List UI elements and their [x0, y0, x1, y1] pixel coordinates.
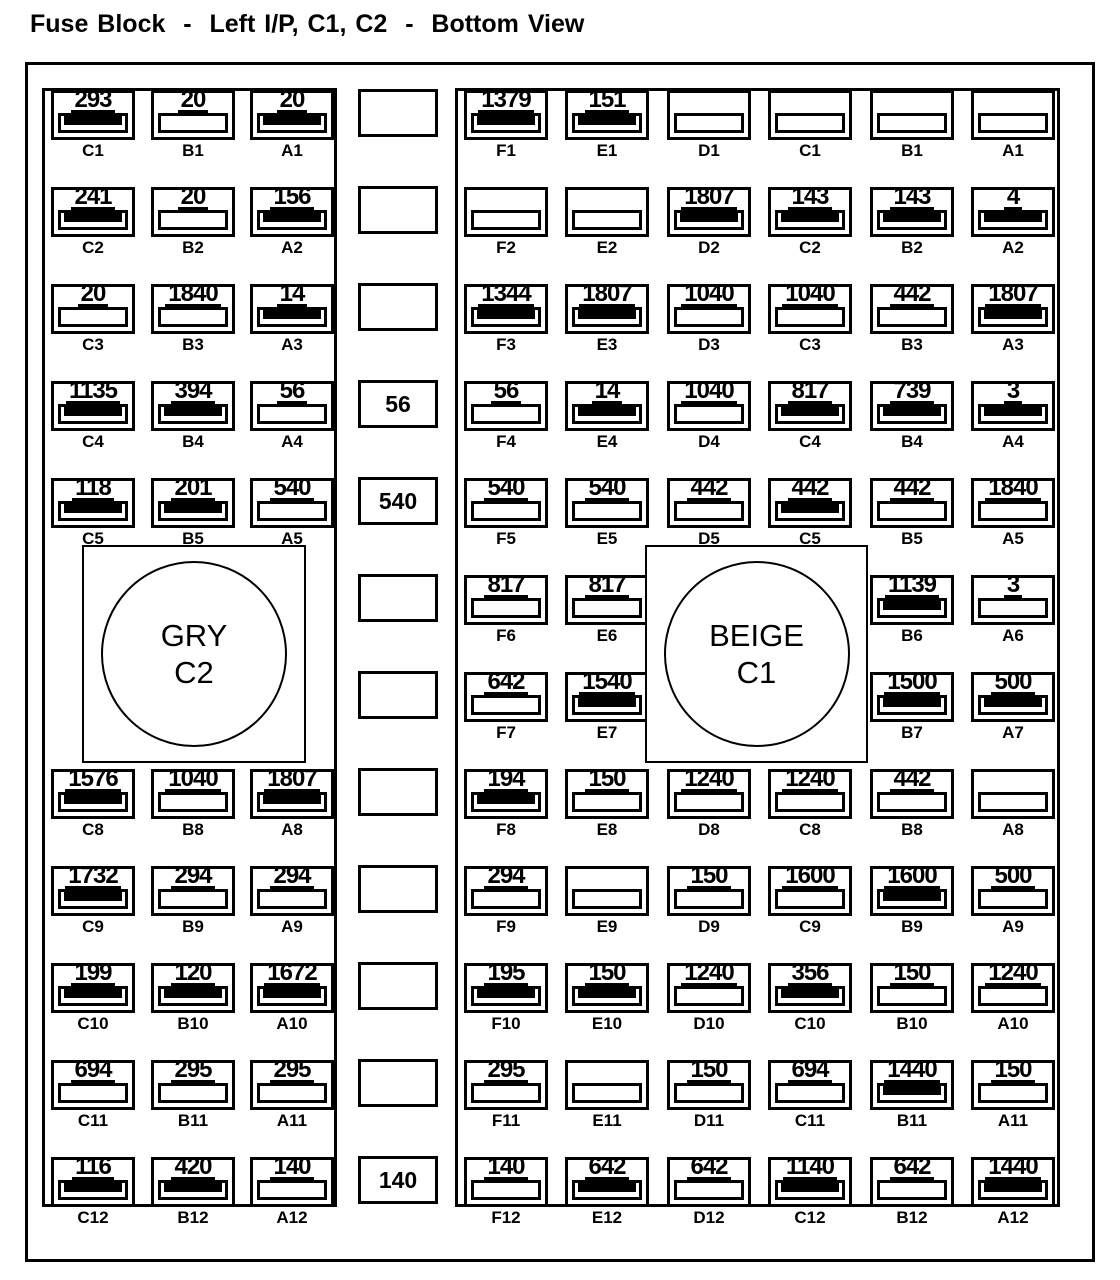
fuse-cell-c2: 143C2	[768, 187, 852, 258]
terminal-slot	[158, 986, 228, 1006]
fuse-cell-box: 295	[464, 1060, 548, 1110]
fuse-cell-a9: 500A9	[971, 866, 1055, 937]
terminal-slot	[775, 792, 845, 812]
circuit-number: 1807	[974, 284, 1052, 305]
fuse-cell-box	[971, 90, 1055, 140]
fuse-cell-f5: 540F5	[464, 478, 548, 549]
fuse-cell-f6: 817F6	[464, 575, 548, 646]
fuse-cell-box: 1140	[768, 1157, 852, 1207]
terminal-slot	[572, 1083, 642, 1103]
fuse-cell-box: 150	[667, 1060, 751, 1110]
fuse-cell-d9: 150D9	[667, 866, 751, 937]
fuse-cell-box: 140	[250, 1157, 334, 1207]
fuse-cell-box	[768, 90, 852, 140]
fuse-cell-b3: 442B3	[870, 284, 954, 355]
terminal-slot	[257, 307, 327, 327]
fuse-cell-box: 1240	[768, 769, 852, 819]
fuse-cell-box: 500	[971, 672, 1055, 722]
circuit-number: 150	[974, 1060, 1052, 1081]
pin-label: E3	[565, 335, 649, 355]
fuse-cell-c12: 116C12	[51, 1157, 135, 1228]
pin-label: D10	[667, 1014, 751, 1034]
terminal-slot	[572, 598, 642, 618]
circuit-number: 394	[154, 381, 232, 402]
middle-bus-box-empty	[358, 89, 438, 137]
fuse-cell-f3: 1344F3	[464, 284, 548, 355]
pin-label: B2	[151, 238, 235, 258]
circuit-number: 4	[974, 187, 1052, 208]
terminal-slot	[877, 986, 947, 1006]
fuse-cell-box: 1040	[667, 381, 751, 431]
fuse-cell-box: 817	[768, 381, 852, 431]
circuit-number: 1240	[670, 963, 748, 984]
circuit-number: 150	[670, 1060, 748, 1081]
fuse-cell-box: 500	[971, 866, 1055, 916]
circuit-number: 14	[253, 284, 331, 305]
fuse-cell-c10: 199C10	[51, 963, 135, 1034]
fuse-cell-a8: 1807A8	[250, 769, 334, 840]
fuse-cell-d10: 1240D10	[667, 963, 751, 1034]
terminal-slot	[978, 307, 1048, 327]
pin-label: B5	[870, 529, 954, 549]
fuse-cell-a1: 20A1	[250, 90, 334, 161]
fuse-cell-box: 394	[151, 381, 235, 431]
circuit-number: 1135	[54, 381, 132, 402]
pin-label: A1	[971, 141, 1055, 161]
fuse-cell-box: 241	[51, 187, 135, 237]
fuse-cell-box: 150	[667, 866, 751, 916]
pin-label: F5	[464, 529, 548, 549]
fuse-cell-c10: 356C10	[768, 963, 852, 1034]
terminal-slot	[877, 113, 947, 133]
terminal-slot	[978, 113, 1048, 133]
terminal-slot	[471, 1083, 541, 1103]
fuse-cell-c4: 1135C4	[51, 381, 135, 452]
fuse-cell-b12: 642B12	[870, 1157, 954, 1228]
fuse-cell-box: 739	[870, 381, 954, 431]
circuit-number: 540	[568, 478, 646, 499]
fuse-cell-box: 1600	[768, 866, 852, 916]
terminal-slot	[471, 113, 541, 133]
fuse-cell-c3: 20C3	[51, 284, 135, 355]
pin-label: C1	[768, 141, 852, 161]
fuse-cell-box: 1807	[971, 284, 1055, 334]
fuse-block-outline: 293C120B120A1241C220B2156A220C31840B314A…	[25, 62, 1095, 1262]
terminal-slot	[471, 792, 541, 812]
terminal-slot	[877, 501, 947, 521]
fuse-cell-a3: 1807A3	[971, 284, 1055, 355]
fuse-cell-b1: 20B1	[151, 90, 235, 161]
pin-label: E6	[565, 626, 649, 646]
terminal-slot	[158, 307, 228, 327]
fuse-cell-box: 1732	[51, 866, 135, 916]
pin-label: D11	[667, 1111, 751, 1131]
fuse-cell-f7: 642F7	[464, 672, 548, 743]
fuse-cell-box: 118	[51, 478, 135, 528]
fuse-cell-c1: 293C1	[51, 90, 135, 161]
pin-label: C8	[768, 820, 852, 840]
fuse-cell-d8: 1240D8	[667, 769, 751, 840]
circuit-number: 420	[154, 1157, 232, 1178]
pin-label: A6	[971, 626, 1055, 646]
pin-label: B6	[870, 626, 954, 646]
circuit-number: 140	[467, 1157, 545, 1178]
fuse-cell-box	[870, 90, 954, 140]
terminal-slot	[58, 889, 128, 909]
middle-bus-box-empty	[358, 962, 438, 1010]
terminal-slot	[978, 1083, 1048, 1103]
terminal-slot	[158, 404, 228, 424]
beige-connector-circle: BEIGE C1	[664, 561, 850, 747]
fuse-cell-d5: 442D5	[667, 478, 751, 549]
fuse-cell-box: 150	[971, 1060, 1055, 1110]
middle-bus-box-empty	[358, 574, 438, 622]
terminal-slot	[978, 598, 1048, 618]
circuit-number: 642	[670, 1157, 748, 1178]
gry-c2-connector: GRY C2	[82, 545, 306, 763]
pin-label: A3	[971, 335, 1055, 355]
circuit-number: 294	[467, 866, 545, 887]
fuse-cell-box: 356	[768, 963, 852, 1013]
fuse-cell-box: 14	[250, 284, 334, 334]
circuit-number: 194	[467, 769, 545, 790]
fuse-cell-b11: 295B11	[151, 1060, 235, 1131]
pin-label: E5	[565, 529, 649, 549]
pin-label: F4	[464, 432, 548, 452]
fuse-cell-box: 20	[51, 284, 135, 334]
circuit-number: 56	[253, 381, 331, 402]
fuse-cell-box: 150	[565, 769, 649, 819]
fuse-cell-b10: 150B10	[870, 963, 954, 1034]
pin-label: B3	[151, 335, 235, 355]
pin-label: F1	[464, 141, 548, 161]
pin-label: A2	[971, 238, 1055, 258]
circuit-number: 442	[670, 478, 748, 499]
fuse-cell-box: 151	[565, 90, 649, 140]
connector-color-label: GRY	[161, 617, 228, 654]
circuit-number: 1240	[974, 963, 1052, 984]
circuit-number: 199	[54, 963, 132, 984]
fuse-cell-box: 1540	[565, 672, 649, 722]
fuse-cell-box: 1840	[151, 284, 235, 334]
pin-label: B4	[870, 432, 954, 452]
circuit-number: 1672	[253, 963, 331, 984]
fuse-cell-box: 56	[464, 381, 548, 431]
fuse-cell-e9: E9	[565, 866, 649, 937]
pin-label: A12	[250, 1208, 334, 1228]
pin-label: A2	[250, 238, 334, 258]
fuse-cell-box: 1135	[51, 381, 135, 431]
fuse-cell-b9: 294B9	[151, 866, 235, 937]
fuse-cell-box: 1576	[51, 769, 135, 819]
terminal-slot	[158, 501, 228, 521]
fuse-cell-box: 14	[565, 381, 649, 431]
circuit-number: 143	[771, 187, 849, 208]
pin-label: F12	[464, 1208, 548, 1228]
fuse-cell-box: 1600	[870, 866, 954, 916]
terminal-slot	[877, 1083, 947, 1103]
fuse-cell-c4: 817C4	[768, 381, 852, 452]
terminal-slot	[471, 889, 541, 909]
fuse-cell-box: 1840	[971, 478, 1055, 528]
terminal-slot	[471, 598, 541, 618]
circuit-number: 20	[253, 90, 331, 111]
circuit-number: 1807	[568, 284, 646, 305]
pin-label: B7	[870, 723, 954, 743]
fuse-cell-e2: E2	[565, 187, 649, 258]
circuit-number: 1140	[771, 1157, 849, 1178]
fuse-cell-box: 295	[250, 1060, 334, 1110]
fuse-cell-box	[464, 187, 548, 237]
fuse-cell-a10: 1672A10	[250, 963, 334, 1034]
pin-label: A11	[971, 1111, 1055, 1131]
fuse-cell-e12: 642E12	[565, 1157, 649, 1228]
fuse-cell-d11: 150D11	[667, 1060, 751, 1131]
terminal-slot	[775, 889, 845, 909]
pin-label: A8	[971, 820, 1055, 840]
circuit-number	[974, 90, 1052, 111]
fuse-cell-d1: D1	[667, 90, 751, 161]
pin-label: A10	[971, 1014, 1055, 1034]
fuse-cell-box: 20	[151, 90, 235, 140]
fuse-cell-a12: 140A12	[250, 1157, 334, 1228]
circuit-number: 500	[974, 866, 1052, 887]
terminal-slot	[572, 210, 642, 230]
pin-label: C12	[768, 1208, 852, 1228]
pin-label: C9	[768, 917, 852, 937]
terminal-slot	[674, 501, 744, 521]
terminal-slot	[877, 307, 947, 327]
terminal-slot	[158, 792, 228, 812]
fuse-cell-box: 20	[250, 90, 334, 140]
pin-label: C10	[51, 1014, 135, 1034]
pin-label: B1	[870, 141, 954, 161]
pin-label: E1	[565, 141, 649, 161]
terminal-slot	[775, 1083, 845, 1103]
fuse-cell-box: 56	[250, 381, 334, 431]
pin-label: F6	[464, 626, 548, 646]
circuit-number	[568, 866, 646, 887]
terminal-slot	[158, 1083, 228, 1103]
pin-label: C12	[51, 1208, 135, 1228]
fuse-cell-a12: 1440A12	[971, 1157, 1055, 1228]
fuse-cell-a4: 56A4	[250, 381, 334, 452]
beige-c1-connector: BEIGE C1	[645, 545, 868, 763]
terminal-slot	[978, 695, 1048, 715]
pin-label: B2	[870, 238, 954, 258]
pin-label: C4	[768, 432, 852, 452]
fuse-cell-c8: 1576C8	[51, 769, 135, 840]
circuit-number: 642	[873, 1157, 951, 1178]
pin-label: C1	[51, 141, 135, 161]
fuse-cell-box: 116	[51, 1157, 135, 1207]
terminal-slot	[257, 889, 327, 909]
circuit-number: 150	[568, 769, 646, 790]
circuit-number: 1500	[873, 672, 951, 693]
fuse-cell-box: 817	[464, 575, 548, 625]
terminal-slot	[775, 307, 845, 327]
terminal-slot	[674, 113, 744, 133]
circuit-number: 294	[253, 866, 331, 887]
terminal-slot	[158, 1180, 228, 1200]
fuse-cell-e3: 1807E3	[565, 284, 649, 355]
fuse-cell-b2: 20B2	[151, 187, 235, 258]
fuse-cell-box: 642	[464, 672, 548, 722]
pin-label: A4	[250, 432, 334, 452]
fuse-cell-box: 1344	[464, 284, 548, 334]
circuit-number: 118	[54, 478, 132, 499]
circuit-number: 1807	[670, 187, 748, 208]
terminal-slot	[58, 501, 128, 521]
terminal-slot	[775, 210, 845, 230]
fuse-cell-box: 817	[565, 575, 649, 625]
circuit-number: 295	[154, 1060, 232, 1081]
terminal-slot	[58, 1083, 128, 1103]
fuse-cell-a5: 540A5	[250, 478, 334, 549]
circuit-number: 201	[154, 478, 232, 499]
circuit-number: 1040	[670, 381, 748, 402]
pin-label: A5	[971, 529, 1055, 549]
terminal-slot	[471, 986, 541, 1006]
fuse-cell-box: 442	[667, 478, 751, 528]
terminal-slot	[674, 889, 744, 909]
fuse-cell-box: 540	[565, 478, 649, 528]
circuit-number: 442	[873, 478, 951, 499]
fuse-cell-box: 143	[870, 187, 954, 237]
pin-label: A9	[250, 917, 334, 937]
fuse-cell-a11: 150A11	[971, 1060, 1055, 1131]
pin-label: F3	[464, 335, 548, 355]
middle-bus-box-empty	[358, 1059, 438, 1107]
fuse-cell-e1: 151E1	[565, 90, 649, 161]
fuse-cell-box: 293	[51, 90, 135, 140]
middle-bus-box-empty	[358, 768, 438, 816]
fuse-cell-a2: 156A2	[250, 187, 334, 258]
fuse-cell-c1: C1	[768, 90, 852, 161]
pin-label: C11	[768, 1111, 852, 1131]
terminal-slot	[978, 792, 1048, 812]
terminal-slot	[877, 404, 947, 424]
terminal-slot	[58, 307, 128, 327]
fuse-cell-box: 1040	[768, 284, 852, 334]
terminal-slot	[572, 307, 642, 327]
circuit-number: 150	[670, 866, 748, 887]
connector-color-label: BEIGE	[709, 617, 804, 654]
fuse-cell-e4: 14E4	[565, 381, 649, 452]
pin-label: E7	[565, 723, 649, 743]
circuit-number: 1807	[253, 769, 331, 790]
pin-label: C11	[51, 1111, 135, 1131]
circuit-number: 143	[873, 187, 951, 208]
terminal-slot	[58, 210, 128, 230]
terminal-slot	[572, 113, 642, 133]
pin-label: B11	[870, 1111, 954, 1131]
fuse-cell-c11: 694C11	[51, 1060, 135, 1131]
pin-label: D2	[667, 238, 751, 258]
terminal-slot	[674, 1083, 744, 1103]
pin-label: A11	[250, 1111, 334, 1131]
pin-label: A8	[250, 820, 334, 840]
fuse-cell-a11: 295A11	[250, 1060, 334, 1131]
pin-label: D9	[667, 917, 751, 937]
fuse-cell-box: 294	[464, 866, 548, 916]
fuse-cell-b6: 1139B6	[870, 575, 954, 646]
terminal-slot	[978, 1180, 1048, 1200]
diagram-title: Fuse Block - Left I/P, C1, C2 - Bottom V…	[30, 10, 584, 39]
fuse-cell-box: 294	[250, 866, 334, 916]
circuit-number: 295	[253, 1060, 331, 1081]
terminal-slot	[877, 695, 947, 715]
fuse-cell-box: 1807	[667, 187, 751, 237]
circuit-number: 540	[253, 478, 331, 499]
fuse-cell-box: 1500	[870, 672, 954, 722]
pin-label: E8	[565, 820, 649, 840]
fuse-cell-box: 540	[464, 478, 548, 528]
pin-label: C2	[51, 238, 135, 258]
pin-label: A3	[250, 335, 334, 355]
circuit-number: 694	[771, 1060, 849, 1081]
pin-label: B10	[870, 1014, 954, 1034]
terminal-slot	[158, 210, 228, 230]
pin-label: D12	[667, 1208, 751, 1228]
pin-label: C3	[768, 335, 852, 355]
fuse-cell-box	[565, 187, 649, 237]
terminal-slot	[572, 792, 642, 812]
pin-label: C4	[51, 432, 135, 452]
circuit-number: 156	[253, 187, 331, 208]
pin-label: A12	[971, 1208, 1055, 1228]
circuit-number: 1576	[54, 769, 132, 790]
pin-label: E9	[565, 917, 649, 937]
fuse-cell-a8: A8	[971, 769, 1055, 840]
fuse-cell-c12: 1140C12	[768, 1157, 852, 1228]
fuse-cell-a10: 1240A10	[971, 963, 1055, 1034]
terminal-slot	[877, 1180, 947, 1200]
fuse-cell-b11: 1440B11	[870, 1060, 954, 1131]
pin-label: F2	[464, 238, 548, 258]
terminal-slot	[674, 986, 744, 1006]
pin-label: B9	[870, 917, 954, 937]
circuit-number: 294	[154, 866, 232, 887]
fuse-cell-box: 1040	[151, 769, 235, 819]
terminal-slot	[471, 501, 541, 521]
circuit-number: 241	[54, 187, 132, 208]
circuit-number: 1840	[154, 284, 232, 305]
circuit-number: 1040	[670, 284, 748, 305]
terminal-slot	[978, 404, 1048, 424]
circuit-number: 150	[873, 963, 951, 984]
pin-label: C8	[51, 820, 135, 840]
fuse-cell-box: 140	[464, 1157, 548, 1207]
terminal-slot	[158, 113, 228, 133]
terminal-slot	[257, 501, 327, 521]
fuse-cell-box: 199	[51, 963, 135, 1013]
pin-label: B12	[870, 1208, 954, 1228]
fuse-cell-box: 1240	[971, 963, 1055, 1013]
connector-code-label: C2	[174, 654, 214, 691]
pin-label: D1	[667, 141, 751, 161]
fuse-cell-b5: 442B5	[870, 478, 954, 549]
circuit-number: 293	[54, 90, 132, 111]
fuse-cell-b10: 120B10	[151, 963, 235, 1034]
fuse-cell-c9: 1600C9	[768, 866, 852, 937]
fuse-cell-e6: 817E6	[565, 575, 649, 646]
terminal-slot	[674, 307, 744, 327]
fuse-cell-a4: 3A4	[971, 381, 1055, 452]
pin-label: C10	[768, 1014, 852, 1034]
pin-label: C9	[51, 917, 135, 937]
pin-label: E10	[565, 1014, 649, 1034]
